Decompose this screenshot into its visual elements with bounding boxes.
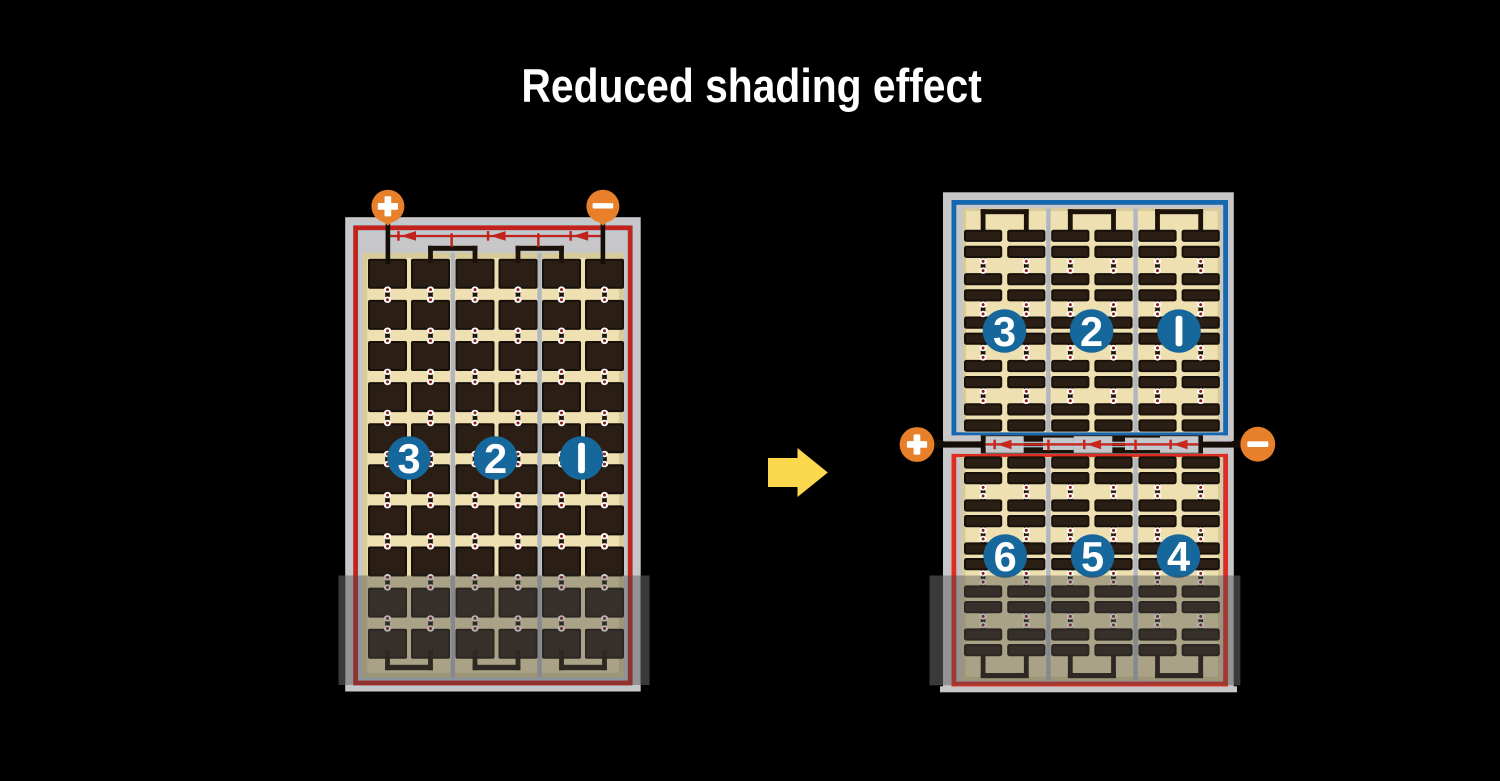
svg-text:2: 2 [1080, 308, 1103, 355]
svg-text:3: 3 [993, 308, 1016, 355]
svg-text:6: 6 [994, 533, 1017, 580]
svg-text:5: 5 [1081, 533, 1104, 580]
svg-text:2: 2 [484, 435, 507, 482]
svg-text:Reduced shading effect: Reduced shading effect [521, 60, 982, 113]
svg-text:3: 3 [397, 435, 420, 482]
svg-text:4: 4 [1167, 533, 1190, 580]
